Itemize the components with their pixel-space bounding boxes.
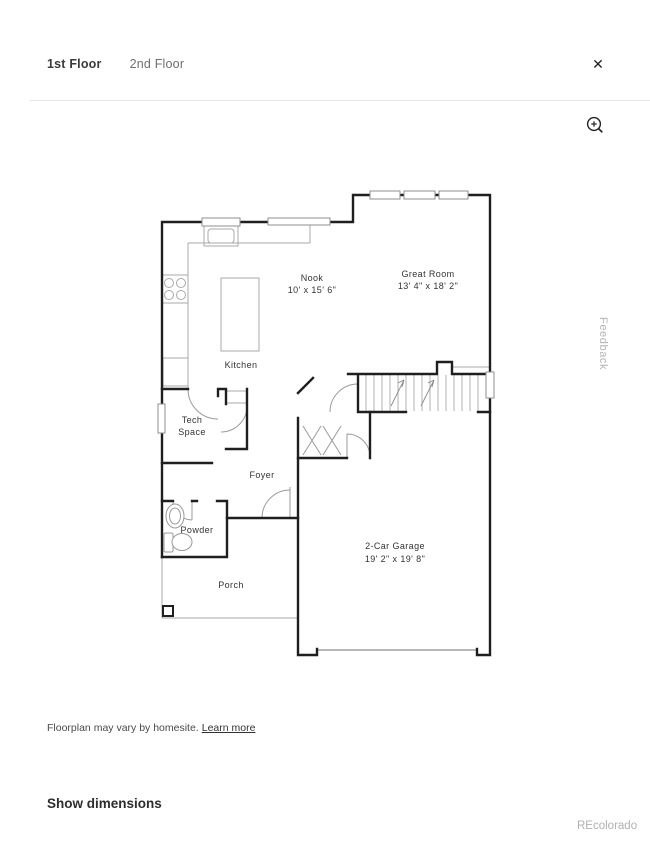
room-label-porch: Porch xyxy=(218,580,244,590)
room-label-foyer: Foyer xyxy=(249,470,274,480)
windows xyxy=(158,191,494,433)
room-dims-garage: 19' 2" x 19' 8" xyxy=(365,554,425,564)
walls xyxy=(162,195,490,655)
watermark-text: REcolorado xyxy=(577,820,637,832)
room-label-tech: Tech xyxy=(182,415,203,425)
room-label-garage: 2-Car Garage xyxy=(365,541,425,551)
door-swings xyxy=(173,384,370,520)
floorplan-image: Nook 10' x 15' 6" Great Room 13' 4" x 18… xyxy=(0,0,650,841)
room-label-great-room: Great Room xyxy=(401,269,454,279)
feedback-tab[interactable]: Feedback xyxy=(597,317,609,370)
floorplan-modal: 1st Floor 2nd Floor ✕ xyxy=(0,0,650,841)
room-label-powder: Powder xyxy=(181,525,214,535)
room-label-kitchen: Kitchen xyxy=(225,360,258,370)
room-dims-nook: 10' x 15' 6" xyxy=(288,285,336,295)
learn-more-link[interactable]: Learn more xyxy=(202,722,256,734)
room-label-nook: Nook xyxy=(301,273,324,283)
disclaimer-text: Floorplan may vary by homesite.Learn mor… xyxy=(47,722,255,734)
stair-direction-arrows xyxy=(391,380,434,406)
show-dimensions-button[interactable]: Show dimensions xyxy=(47,796,162,811)
room-label-tech-space: Space xyxy=(178,427,206,437)
room-dims-great-room: 13' 4" x 18' 2" xyxy=(398,281,458,291)
disclaimer-label: Floorplan may vary by homesite. xyxy=(47,722,199,734)
counters-and-fixtures xyxy=(162,224,310,403)
